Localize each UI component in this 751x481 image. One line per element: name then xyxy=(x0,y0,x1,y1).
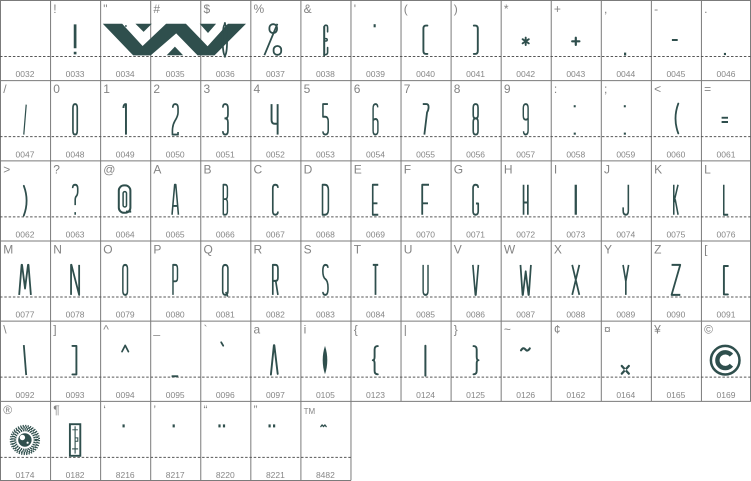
svg-text:N: N xyxy=(53,243,62,257)
svg-text:0162: 0162 xyxy=(566,390,585,400)
svg-text:8220: 8220 xyxy=(216,470,235,480)
svg-text:”: ” xyxy=(254,403,258,417)
svg-text:0035: 0035 xyxy=(166,69,185,79)
svg-text:8482: 8482 xyxy=(316,470,335,480)
svg-text:O: O xyxy=(103,243,112,257)
svg-text:0169: 0169 xyxy=(717,390,736,400)
svg-text:¶: ¶ xyxy=(53,403,59,417)
svg-text:0072: 0072 xyxy=(516,229,535,239)
svg-text:0059: 0059 xyxy=(616,149,635,159)
svg-text:$: $ xyxy=(204,2,211,16)
svg-text:~: ~ xyxy=(504,323,511,337)
svg-text:0126: 0126 xyxy=(516,390,535,400)
svg-text:": " xyxy=(103,2,107,16)
svg-text:0096: 0096 xyxy=(216,390,235,400)
svg-text:0048: 0048 xyxy=(66,149,85,159)
svg-text:Q: Q xyxy=(204,243,213,257)
svg-text:0069: 0069 xyxy=(366,229,385,239)
svg-text:{: { xyxy=(354,323,358,337)
svg-text:': ' xyxy=(354,2,356,16)
svg-text:0051: 0051 xyxy=(216,149,235,159)
svg-text:0075: 0075 xyxy=(666,229,685,239)
svg-text:0164: 0164 xyxy=(616,390,635,400)
svg-text:¢: ¢ xyxy=(554,323,561,337)
svg-text:’: ’ xyxy=(153,403,156,417)
svg-text:0042: 0042 xyxy=(516,69,535,79)
svg-text:_: _ xyxy=(152,323,160,337)
svg-text:0068: 0068 xyxy=(316,229,335,239)
svg-text:0032: 0032 xyxy=(16,69,35,79)
svg-text:0056: 0056 xyxy=(466,149,485,159)
svg-text:}: } xyxy=(454,323,458,337)
svg-text:0070: 0070 xyxy=(416,229,435,239)
svg-text:0095: 0095 xyxy=(166,390,185,400)
svg-text:0039: 0039 xyxy=(366,69,385,79)
svg-text:.: . xyxy=(704,2,707,16)
svg-text:#: # xyxy=(153,2,160,16)
svg-text:G: G xyxy=(454,162,463,176)
svg-text:F: F xyxy=(404,162,411,176)
svg-text:Y: Y xyxy=(604,243,612,257)
svg-text:U: U xyxy=(404,243,413,257)
svg-text:0076: 0076 xyxy=(717,229,736,239)
svg-text:0046: 0046 xyxy=(717,69,736,79)
svg-text:0090: 0090 xyxy=(666,310,685,320)
svg-text:0040: 0040 xyxy=(416,69,435,79)
svg-text:8216: 8216 xyxy=(116,470,135,480)
svg-text:0089: 0089 xyxy=(616,310,635,320)
svg-text:E: E xyxy=(354,162,362,176)
svg-text:0094: 0094 xyxy=(116,390,135,400)
svg-text:0079: 0079 xyxy=(116,310,135,320)
svg-text:0124: 0124 xyxy=(416,390,435,400)
svg-text:^: ^ xyxy=(103,323,109,337)
svg-text:2: 2 xyxy=(153,82,160,96)
svg-text:V: V xyxy=(454,243,462,257)
svg-text:=: = xyxy=(704,82,711,96)
svg-text:M: M xyxy=(3,243,13,257)
svg-text:0084: 0084 xyxy=(366,310,385,320)
svg-text:0063: 0063 xyxy=(66,229,85,239)
svg-text:i: i xyxy=(304,323,307,337)
svg-text:0037: 0037 xyxy=(266,69,285,79)
svg-text:]: ] xyxy=(53,323,56,337)
svg-text:0060: 0060 xyxy=(666,149,685,159)
svg-text:6: 6 xyxy=(354,82,361,96)
svg-text:3: 3 xyxy=(204,82,211,96)
svg-text:0123: 0123 xyxy=(366,390,385,400)
svg-text:<: < xyxy=(654,82,661,96)
svg-text:a: a xyxy=(254,323,261,337)
svg-text:>: > xyxy=(3,162,10,176)
svg-text:0055: 0055 xyxy=(416,149,435,159)
svg-text:K: K xyxy=(654,162,662,176)
svg-text:®: ® xyxy=(3,403,12,417)
svg-text:B: B xyxy=(204,162,212,176)
svg-text:(: ( xyxy=(404,2,408,16)
svg-text:0165: 0165 xyxy=(666,390,685,400)
svg-text:0067: 0067 xyxy=(266,229,285,239)
svg-text:I: I xyxy=(554,162,557,176)
svg-text:W: W xyxy=(504,243,516,257)
svg-text:8217: 8217 xyxy=(166,470,185,480)
svg-text:0088: 0088 xyxy=(566,310,585,320)
svg-text:0036: 0036 xyxy=(216,69,235,79)
svg-text:4: 4 xyxy=(254,82,261,96)
svg-text:0044: 0044 xyxy=(616,69,635,79)
svg-text:0083: 0083 xyxy=(316,310,335,320)
svg-text:0097: 0097 xyxy=(266,390,285,400)
svg-text:H: H xyxy=(504,162,513,176)
svg-text:X: X xyxy=(554,243,562,257)
svg-text:!: ! xyxy=(53,2,56,16)
svg-text:8221: 8221 xyxy=(266,470,285,480)
svg-text:1: 1 xyxy=(103,82,110,96)
svg-text:¥: ¥ xyxy=(653,323,661,337)
svg-text:0092: 0092 xyxy=(16,390,35,400)
svg-text:0057: 0057 xyxy=(516,149,535,159)
svg-text:0080: 0080 xyxy=(166,310,185,320)
svg-text:0054: 0054 xyxy=(366,149,385,159)
svg-text:0078: 0078 xyxy=(66,310,85,320)
svg-text:0045: 0045 xyxy=(666,69,685,79)
svg-text:0091: 0091 xyxy=(717,310,736,320)
svg-text:): ) xyxy=(454,2,458,16)
svg-text:D: D xyxy=(304,162,313,176)
svg-text:0085: 0085 xyxy=(416,310,435,320)
svg-text:0050: 0050 xyxy=(166,149,185,159)
svg-text:0041: 0041 xyxy=(466,69,485,79)
svg-text:0125: 0125 xyxy=(466,390,485,400)
svg-text:0: 0 xyxy=(53,82,60,96)
svg-text:`: ` xyxy=(204,323,208,337)
svg-text:R: R xyxy=(254,243,263,257)
svg-text:5: 5 xyxy=(304,82,311,96)
svg-text:S: S xyxy=(304,243,312,257)
svg-text:P: P xyxy=(153,243,161,257)
svg-text:A: A xyxy=(153,162,161,176)
svg-text:7: 7 xyxy=(404,82,411,96)
svg-text:9: 9 xyxy=(504,82,511,96)
svg-text:0038: 0038 xyxy=(316,69,335,79)
svg-text:‘: ‘ xyxy=(103,403,106,417)
svg-text:0182: 0182 xyxy=(66,470,85,480)
svg-text:0066: 0066 xyxy=(216,229,235,239)
svg-text:8: 8 xyxy=(454,82,461,96)
svg-text:C: C xyxy=(254,162,263,176)
svg-text:0073: 0073 xyxy=(566,229,585,239)
svg-text:T: T xyxy=(354,243,362,257)
svg-text:?: ? xyxy=(53,162,60,176)
svg-text:-: - xyxy=(654,2,658,16)
svg-text:0077: 0077 xyxy=(16,310,35,320)
svg-text:0049: 0049 xyxy=(116,149,135,159)
svg-text:&: & xyxy=(304,2,312,16)
svg-text:0074: 0074 xyxy=(616,229,635,239)
svg-text:0047: 0047 xyxy=(16,149,35,159)
svg-text:0058: 0058 xyxy=(566,149,585,159)
svg-text:¤: ¤ xyxy=(604,323,611,337)
svg-text:%: % xyxy=(254,2,265,16)
svg-text:0065: 0065 xyxy=(166,229,185,239)
svg-text:,: , xyxy=(604,2,607,16)
svg-text:0071: 0071 xyxy=(466,229,485,239)
svg-text:0105: 0105 xyxy=(316,390,335,400)
svg-text:|: | xyxy=(404,323,407,337)
svg-text:0034: 0034 xyxy=(116,69,135,79)
svg-text:0064: 0064 xyxy=(116,229,135,239)
svg-text:0082: 0082 xyxy=(266,310,285,320)
svg-text:“: “ xyxy=(204,403,208,417)
svg-text:0062: 0062 xyxy=(16,229,35,239)
svg-text:0043: 0043 xyxy=(566,69,585,79)
svg-text:J: J xyxy=(604,162,610,176)
svg-text:0061: 0061 xyxy=(717,149,736,159)
svg-text:0087: 0087 xyxy=(516,310,535,320)
svg-text:0086: 0086 xyxy=(466,310,485,320)
svg-text:+: + xyxy=(554,2,561,16)
svg-text:Z: Z xyxy=(654,243,661,257)
svg-text:0033: 0033 xyxy=(66,69,85,79)
svg-text:TM: TM xyxy=(304,407,316,416)
svg-text:0174: 0174 xyxy=(16,470,35,480)
svg-text:0093: 0093 xyxy=(66,390,85,400)
svg-text:*: * xyxy=(504,2,509,16)
svg-text:©: © xyxy=(704,323,713,337)
svg-text:@: @ xyxy=(103,162,115,176)
svg-text:L: L xyxy=(704,162,711,176)
svg-text:;: ; xyxy=(604,82,607,96)
svg-text:0081: 0081 xyxy=(216,310,235,320)
svg-text::: : xyxy=(554,82,557,96)
svg-text:0052: 0052 xyxy=(266,149,285,159)
svg-text:0053: 0053 xyxy=(316,149,335,159)
